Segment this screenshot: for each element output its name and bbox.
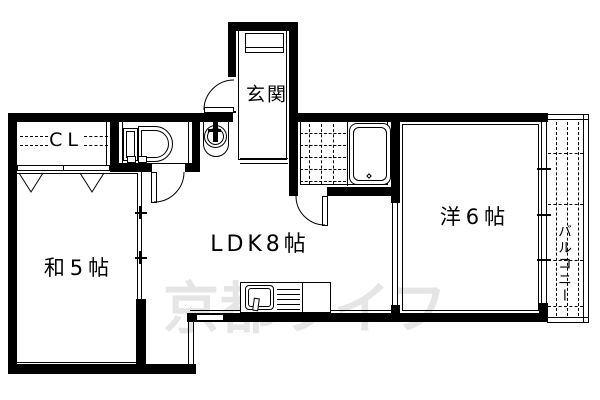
shoe-cabinet-line	[246, 47, 283, 48]
window-balcony-line	[546, 122, 547, 316]
floorplan: 京都ライフ	[0, 0, 600, 400]
partition-tick	[139, 206, 142, 219]
kitchen-drainer-line	[277, 289, 300, 290]
closet-label: CL	[49, 129, 83, 151]
shoe-cabinet	[245, 33, 284, 53]
bath-door-leaf	[322, 196, 328, 226]
wall-bottom-japanese-room	[8, 364, 196, 374]
balcony-rail	[588, 114, 589, 323]
bath-tile-line	[300, 169, 346, 171]
entrance-step-line	[240, 158, 288, 159]
toilet-bowl-inner	[141, 130, 169, 158]
bath-tile-line	[300, 157, 346, 159]
balcony-rail	[547, 317, 588, 318]
window-balcony-line	[541, 122, 542, 316]
balcony-rail	[547, 114, 588, 115]
washbasin-tap-icon	[213, 122, 218, 142]
window-jog-line	[193, 322, 194, 364]
sliding-door-line	[397, 203, 398, 305]
wall-western-room-left-upper	[391, 113, 400, 203]
sliding-door-line	[392, 203, 393, 305]
entrance-doorway	[228, 77, 236, 111]
balcony-hatch	[548, 306, 583, 308]
western-room-label: 洋6帖	[440, 201, 510, 231]
closet-front-tick	[63, 165, 64, 171]
ldk-label: LDK8帖	[210, 226, 310, 258]
balcony-hatch	[578, 122, 580, 316]
window-jog-line	[188, 322, 189, 364]
toilet-door-arc	[154, 172, 184, 202]
balcony-rail	[583, 114, 584, 322]
entrance-label: 玄関	[246, 80, 288, 107]
kitchen-drainer-line	[277, 309, 300, 310]
kitchen-drainer-line	[277, 304, 300, 305]
closet-dash	[20, 136, 48, 138]
balcony-hatch	[548, 204, 583, 206]
toilet-tank-inner	[126, 131, 135, 158]
window-tick	[537, 214, 551, 216]
bath-tile-tub-divider	[347, 122, 348, 186]
kitchen-drainer-line	[277, 294, 300, 295]
partition-line	[141, 172, 142, 299]
wall-bath-bottom	[327, 187, 400, 196]
balcony-rail	[547, 119, 588, 120]
closet-dash	[84, 145, 108, 147]
bathtub-inner	[353, 127, 387, 181]
bath-tile-line	[300, 181, 346, 183]
wall-toilet-bottom-right	[185, 163, 200, 172]
balcony-rail	[547, 322, 589, 323]
window-tick	[537, 168, 551, 170]
entrance-step-line	[240, 163, 288, 164]
washbasin-tap-icon	[208, 129, 221, 132]
wall-bottom-ldk	[187, 313, 548, 322]
toilet-foot	[138, 156, 147, 163]
bath-tile-line	[300, 133, 346, 135]
bath-tile-line	[300, 145, 346, 147]
kitchen-divider	[302, 283, 303, 312]
balcony-hatch	[548, 153, 583, 155]
closet-dash	[84, 136, 108, 138]
partition-tick	[139, 251, 142, 264]
window-ldk-bottom	[197, 314, 223, 321]
balcony-label: バルコニー	[554, 224, 574, 304]
closet-dash	[20, 145, 48, 147]
wall-western-room-left-lower	[391, 305, 400, 313]
wall-entrance-right	[289, 22, 298, 196]
bath-door-arc	[296, 196, 325, 225]
toilet-foot	[127, 156, 136, 163]
wall-toilet-bottom-left	[110, 163, 152, 172]
japanese-room-label: 和5帖	[44, 252, 114, 282]
kitchen-drainer-line	[277, 299, 300, 300]
toilet-door-leaf	[151, 172, 157, 203]
entrance-door-leaf	[204, 107, 234, 113]
